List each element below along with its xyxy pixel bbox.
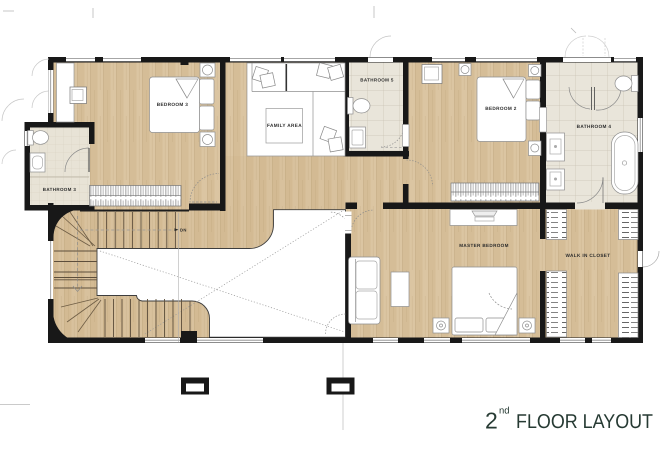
svg-text:FLOOR LAYOUT: FLOOR LAYOUT (516, 411, 653, 433)
svg-text:FAMILY AREA: FAMILY AREA (267, 123, 302, 128)
svg-text:nd: nd (499, 406, 510, 417)
svg-text:BEDROOM 3: BEDROOM 3 (157, 102, 189, 107)
svg-text:MASTER BEDROOM: MASTER BEDROOM (459, 243, 509, 248)
svg-text:BATHROOM 4: BATHROOM 4 (577, 124, 612, 129)
svg-text:BEDROOM 2: BEDROOM 2 (485, 106, 517, 111)
svg-text:WALK IN CLOSET: WALK IN CLOSET (565, 253, 610, 258)
svg-text:DN: DN (180, 228, 187, 233)
svg-text:BATHROOM 5: BATHROOM 5 (360, 78, 394, 83)
svg-text:BATHROOM 3: BATHROOM 3 (43, 187, 77, 192)
svg-text:2: 2 (485, 408, 498, 434)
